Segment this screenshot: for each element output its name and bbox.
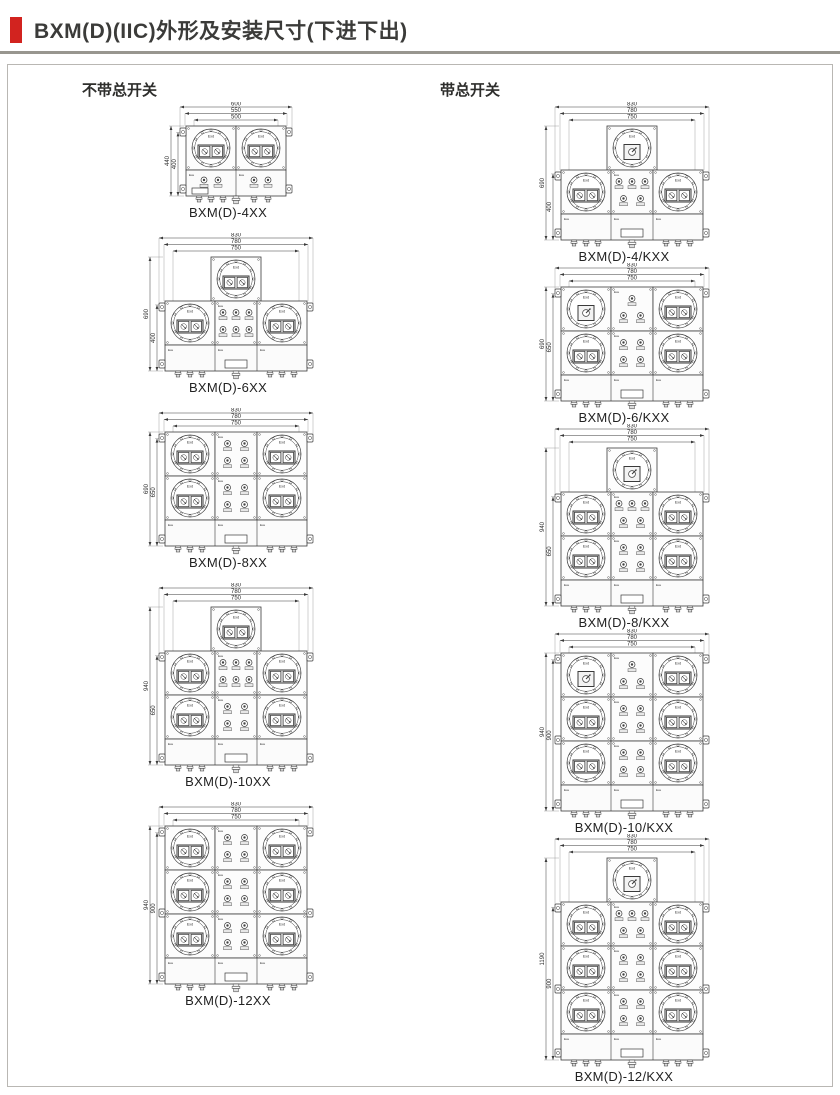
svg-text:Exe: Exe: [614, 744, 620, 748]
svg-text:Exd: Exd: [675, 662, 681, 666]
svg-text:Exe: Exe: [239, 173, 245, 177]
svg-text:Exe: Exe: [614, 290, 620, 294]
figure-bxm-d-6xx: 830780750690400ExdExdExeExdExeExeExeBXM(…: [128, 233, 328, 394]
content-frame: 不带总开关 600550500440400ExdExdExeExeBXM(D)-…: [7, 64, 833, 1087]
svg-text:Exd: Exd: [675, 296, 681, 300]
technical-drawing-bxm-d-8-kxx: 830780750940650ExdExdExeExdExdExeExdExeE…: [524, 424, 724, 616]
technical-drawing-bxm-d-12xx: 830780750940900ExdExeExdExdExeExdExdExeE…: [128, 802, 328, 994]
svg-text:Exd: Exd: [629, 867, 635, 871]
svg-text:650: 650: [547, 546, 553, 557]
svg-text:500: 500: [231, 114, 242, 120]
svg-text:Exe: Exe: [656, 1037, 662, 1041]
svg-text:Exe: Exe: [614, 539, 620, 543]
svg-text:Exd: Exd: [187, 660, 193, 664]
figure-bxm-d-4xx: 600550500440400ExdExdExeExeBXM(D)-4XX: [128, 102, 328, 219]
svg-text:400: 400: [547, 201, 553, 212]
svg-text:Exd: Exd: [187, 704, 193, 708]
svg-text:Exe: Exe: [218, 873, 224, 877]
svg-text:Exd: Exd: [583, 179, 589, 183]
svg-text:Exe: Exe: [614, 993, 620, 997]
svg-text:780: 780: [231, 808, 242, 814]
red-accent-block: [10, 17, 22, 43]
svg-text:Exe: Exe: [614, 217, 620, 221]
svg-text:Exe: Exe: [564, 1037, 570, 1041]
svg-text:750: 750: [627, 641, 638, 647]
figure-caption: BXM(D)-8XX: [128, 557, 328, 569]
svg-text:830: 830: [627, 102, 638, 107]
svg-text:830: 830: [627, 629, 638, 634]
figure-bxm-d-10xx: 830780750940650ExdExdExeExdExdExeExdExeE…: [128, 583, 328, 788]
svg-text:Exe: Exe: [218, 304, 224, 308]
svg-text:Exd: Exd: [187, 879, 193, 883]
svg-text:Exd: Exd: [279, 704, 285, 708]
svg-text:Exd: Exd: [258, 135, 264, 139]
svg-text:Exd: Exd: [675, 179, 681, 183]
svg-text:Exe: Exe: [564, 217, 570, 221]
svg-text:550: 550: [231, 108, 242, 114]
svg-text:Exe: Exe: [614, 378, 620, 382]
technical-drawing-bxm-d-10-kxx: 830780750940900ExdExeExdExdExeExdExdExeE…: [524, 629, 724, 821]
svg-text:Exd: Exd: [675, 340, 681, 344]
technical-drawing-bxm-d-4-kxx: 830780750690400ExdExdExeExdExeExeExe: [524, 102, 724, 250]
svg-text:940: 940: [540, 521, 546, 532]
figure-caption: BXM(D)-12/KXX: [524, 1071, 724, 1083]
technical-drawing-bxm-d-12-kxx: 8307807501190900ExdExdExeExdExdExeExdExd…: [524, 834, 724, 1070]
figure-bxm-d-8xx: 830780750690650ExdExeExdExdExeExdExeExeE…: [128, 408, 328, 569]
figure-caption: BXM(D)-8/KXX: [524, 617, 724, 629]
svg-text:Exe: Exe: [614, 173, 620, 177]
svg-text:Exe: Exe: [614, 495, 620, 499]
svg-text:Exd: Exd: [583, 662, 589, 666]
svg-text:Exd: Exd: [675, 501, 681, 505]
svg-text:Exd: Exd: [629, 135, 635, 139]
column-without-main-switch: 不带总开关 600550500440400ExdExdExeExeBXM(D)-…: [30, 69, 426, 1086]
svg-text:Exd: Exd: [675, 955, 681, 959]
svg-text:750: 750: [627, 275, 638, 281]
svg-text:Exe: Exe: [168, 742, 174, 746]
svg-text:Exd: Exd: [208, 135, 214, 139]
svg-text:Exe: Exe: [656, 378, 662, 382]
svg-text:940: 940: [540, 726, 546, 737]
svg-text:Exd: Exd: [187, 441, 193, 445]
svg-text:650: 650: [151, 705, 157, 716]
svg-text:690: 690: [540, 338, 546, 349]
svg-text:Exe: Exe: [189, 173, 195, 177]
svg-text:780: 780: [627, 840, 638, 846]
svg-text:Exd: Exd: [187, 923, 193, 927]
svg-text:Exd: Exd: [279, 879, 285, 883]
svg-text:Exe: Exe: [260, 742, 266, 746]
svg-text:780: 780: [627, 108, 638, 114]
svg-text:Exe: Exe: [218, 698, 224, 702]
svg-text:750: 750: [627, 436, 638, 442]
svg-text:Exd: Exd: [233, 266, 239, 270]
svg-text:900: 900: [151, 903, 157, 914]
svg-text:750: 750: [627, 114, 638, 120]
svg-text:Exd: Exd: [279, 485, 285, 489]
column-with-main-switch: 带总开关 830780750690400ExdExdExeExdExeExeEx…: [426, 69, 822, 1086]
svg-text:Exe: Exe: [218, 917, 224, 921]
svg-text:Exe: Exe: [260, 348, 266, 352]
technical-drawing-bxm-d-6xx: 830780750690400ExdExdExeExdExeExeExe: [128, 233, 328, 381]
svg-text:Exe: Exe: [218, 829, 224, 833]
figure-caption: BXM(D)-4XX: [128, 207, 328, 219]
svg-text:830: 830: [231, 802, 242, 807]
svg-text:Exd: Exd: [675, 750, 681, 754]
svg-text:900: 900: [547, 978, 553, 989]
figure-caption: BXM(D)-10/KXX: [524, 822, 724, 834]
svg-text:Exd: Exd: [583, 545, 589, 549]
svg-text:690: 690: [144, 483, 150, 494]
section-label-left: 不带总开关: [82, 79, 157, 100]
svg-text:Exd: Exd: [675, 706, 681, 710]
svg-text:Exe: Exe: [564, 583, 570, 587]
svg-text:Exe: Exe: [614, 334, 620, 338]
svg-text:Exe: Exe: [218, 348, 224, 352]
svg-text:Exd: Exd: [279, 310, 285, 314]
svg-text:780: 780: [231, 239, 242, 245]
figure-bxm-d-6-kxx: 830780750690650ExdExeExdExdExeExdExeExeE…: [524, 263, 724, 424]
figure-bxm-d-10-kxx: 830780750940900ExdExeExdExdExeExdExdExeE…: [524, 629, 724, 834]
svg-text:Exd: Exd: [583, 999, 589, 1003]
svg-text:Exd: Exd: [279, 441, 285, 445]
figure-bxm-d-12-kxx: 8307807501190900ExdExdExeExdExdExeExdExd…: [524, 834, 724, 1083]
svg-text:830: 830: [627, 424, 638, 429]
svg-text:Exe: Exe: [168, 348, 174, 352]
svg-text:Exd: Exd: [187, 310, 193, 314]
svg-text:Exe: Exe: [218, 479, 224, 483]
svg-text:750: 750: [231, 814, 242, 820]
svg-text:Exd: Exd: [583, 296, 589, 300]
svg-text:Exe: Exe: [564, 788, 570, 792]
svg-text:Exe: Exe: [614, 1037, 620, 1041]
svg-text:940: 940: [144, 899, 150, 910]
svg-text:780: 780: [231, 589, 242, 595]
svg-text:Exd: Exd: [675, 911, 681, 915]
svg-text:1190: 1190: [540, 952, 546, 966]
svg-text:690: 690: [144, 308, 150, 319]
svg-text:Exe: Exe: [614, 949, 620, 953]
svg-text:Exe: Exe: [614, 700, 620, 704]
svg-text:Exd: Exd: [187, 485, 193, 489]
section-label-right: 带总开关: [440, 79, 500, 100]
svg-text:Exd: Exd: [279, 923, 285, 927]
figure-bxm-d-8-kxx: 830780750940650ExdExdExeExdExdExeExdExeE…: [524, 424, 724, 629]
svg-text:Exe: Exe: [656, 583, 662, 587]
svg-text:Exd: Exd: [583, 706, 589, 710]
svg-text:Exe: Exe: [218, 654, 224, 658]
svg-text:650: 650: [547, 342, 553, 353]
svg-text:600: 600: [231, 102, 242, 107]
svg-text:Exd: Exd: [583, 750, 589, 754]
svg-text:Exd: Exd: [583, 340, 589, 344]
svg-text:830: 830: [627, 834, 638, 839]
svg-text:Exe: Exe: [614, 583, 620, 587]
figure-caption: BXM(D)-12XX: [128, 995, 328, 1007]
technical-drawing-bxm-d-8xx: 830780750690650ExdExeExdExdExeExdExeExeE…: [128, 408, 328, 556]
svg-text:830: 830: [231, 233, 242, 238]
svg-text:Exe: Exe: [614, 905, 620, 909]
svg-text:440: 440: [165, 155, 171, 166]
svg-text:Exe: Exe: [260, 523, 266, 527]
svg-text:750: 750: [231, 420, 242, 426]
page-header: BXM(D)(IIC)外形及安装尺寸(下进下出): [0, 0, 840, 54]
svg-text:900: 900: [547, 730, 553, 741]
figure-bxm-d-12xx: 830780750940900ExdExeExdExdExeExdExdExeE…: [128, 802, 328, 1007]
figure-caption: BXM(D)-6/KXX: [524, 412, 724, 424]
svg-text:750: 750: [627, 846, 638, 852]
technical-drawing-bxm-d-4xx: 600550500440400ExdExdExeExe: [128, 102, 328, 206]
svg-text:780: 780: [627, 430, 638, 436]
svg-text:Exd: Exd: [279, 835, 285, 839]
svg-text:Exe: Exe: [218, 742, 224, 746]
svg-text:Exd: Exd: [583, 911, 589, 915]
svg-text:Exe: Exe: [564, 378, 570, 382]
svg-text:780: 780: [231, 414, 242, 420]
figure-caption: BXM(D)-6XX: [128, 382, 328, 394]
svg-text:Exe: Exe: [218, 523, 224, 527]
svg-text:Exd: Exd: [629, 457, 635, 461]
svg-text:400: 400: [172, 159, 178, 170]
technical-drawing-bxm-d-10xx: 830780750940650ExdExdExeExdExdExeExdExeE…: [128, 583, 328, 775]
svg-text:Exd: Exd: [583, 955, 589, 959]
svg-text:Exe: Exe: [218, 961, 224, 965]
svg-text:780: 780: [627, 269, 638, 275]
svg-text:400: 400: [151, 332, 157, 343]
svg-text:780: 780: [627, 635, 638, 641]
svg-text:Exe: Exe: [614, 788, 620, 792]
svg-text:Exe: Exe: [218, 435, 224, 439]
svg-text:750: 750: [231, 245, 242, 251]
svg-text:Exd: Exd: [233, 616, 239, 620]
figure-caption: BXM(D)-4/KXX: [524, 251, 724, 263]
svg-text:690: 690: [540, 177, 546, 188]
svg-text:Exd: Exd: [675, 545, 681, 549]
svg-text:750: 750: [231, 595, 242, 601]
svg-text:Exe: Exe: [168, 523, 174, 527]
svg-text:Exe: Exe: [614, 656, 620, 660]
svg-text:Exe: Exe: [260, 961, 266, 965]
svg-text:Exd: Exd: [583, 501, 589, 505]
svg-text:Exe: Exe: [168, 961, 174, 965]
svg-text:830: 830: [231, 408, 242, 413]
svg-text:Exe: Exe: [656, 217, 662, 221]
figure-bxm-d-4-kxx: 830780750690400ExdExdExeExdExeExeExeBXM(…: [524, 102, 724, 263]
svg-text:940: 940: [144, 680, 150, 691]
technical-drawing-bxm-d-6-kxx: 830780750690650ExdExeExdExdExeExdExeExeE…: [524, 263, 724, 411]
svg-text:Exd: Exd: [279, 660, 285, 664]
svg-text:830: 830: [231, 583, 242, 588]
page-title: BXM(D)(IIC)外形及安装尺寸(下进下出): [34, 15, 408, 45]
svg-text:Exd: Exd: [187, 835, 193, 839]
svg-text:Exd: Exd: [675, 999, 681, 1003]
svg-text:Exe: Exe: [656, 788, 662, 792]
figure-caption: BXM(D)-10XX: [128, 776, 328, 788]
svg-text:650: 650: [151, 487, 157, 498]
svg-text:830: 830: [627, 263, 638, 268]
